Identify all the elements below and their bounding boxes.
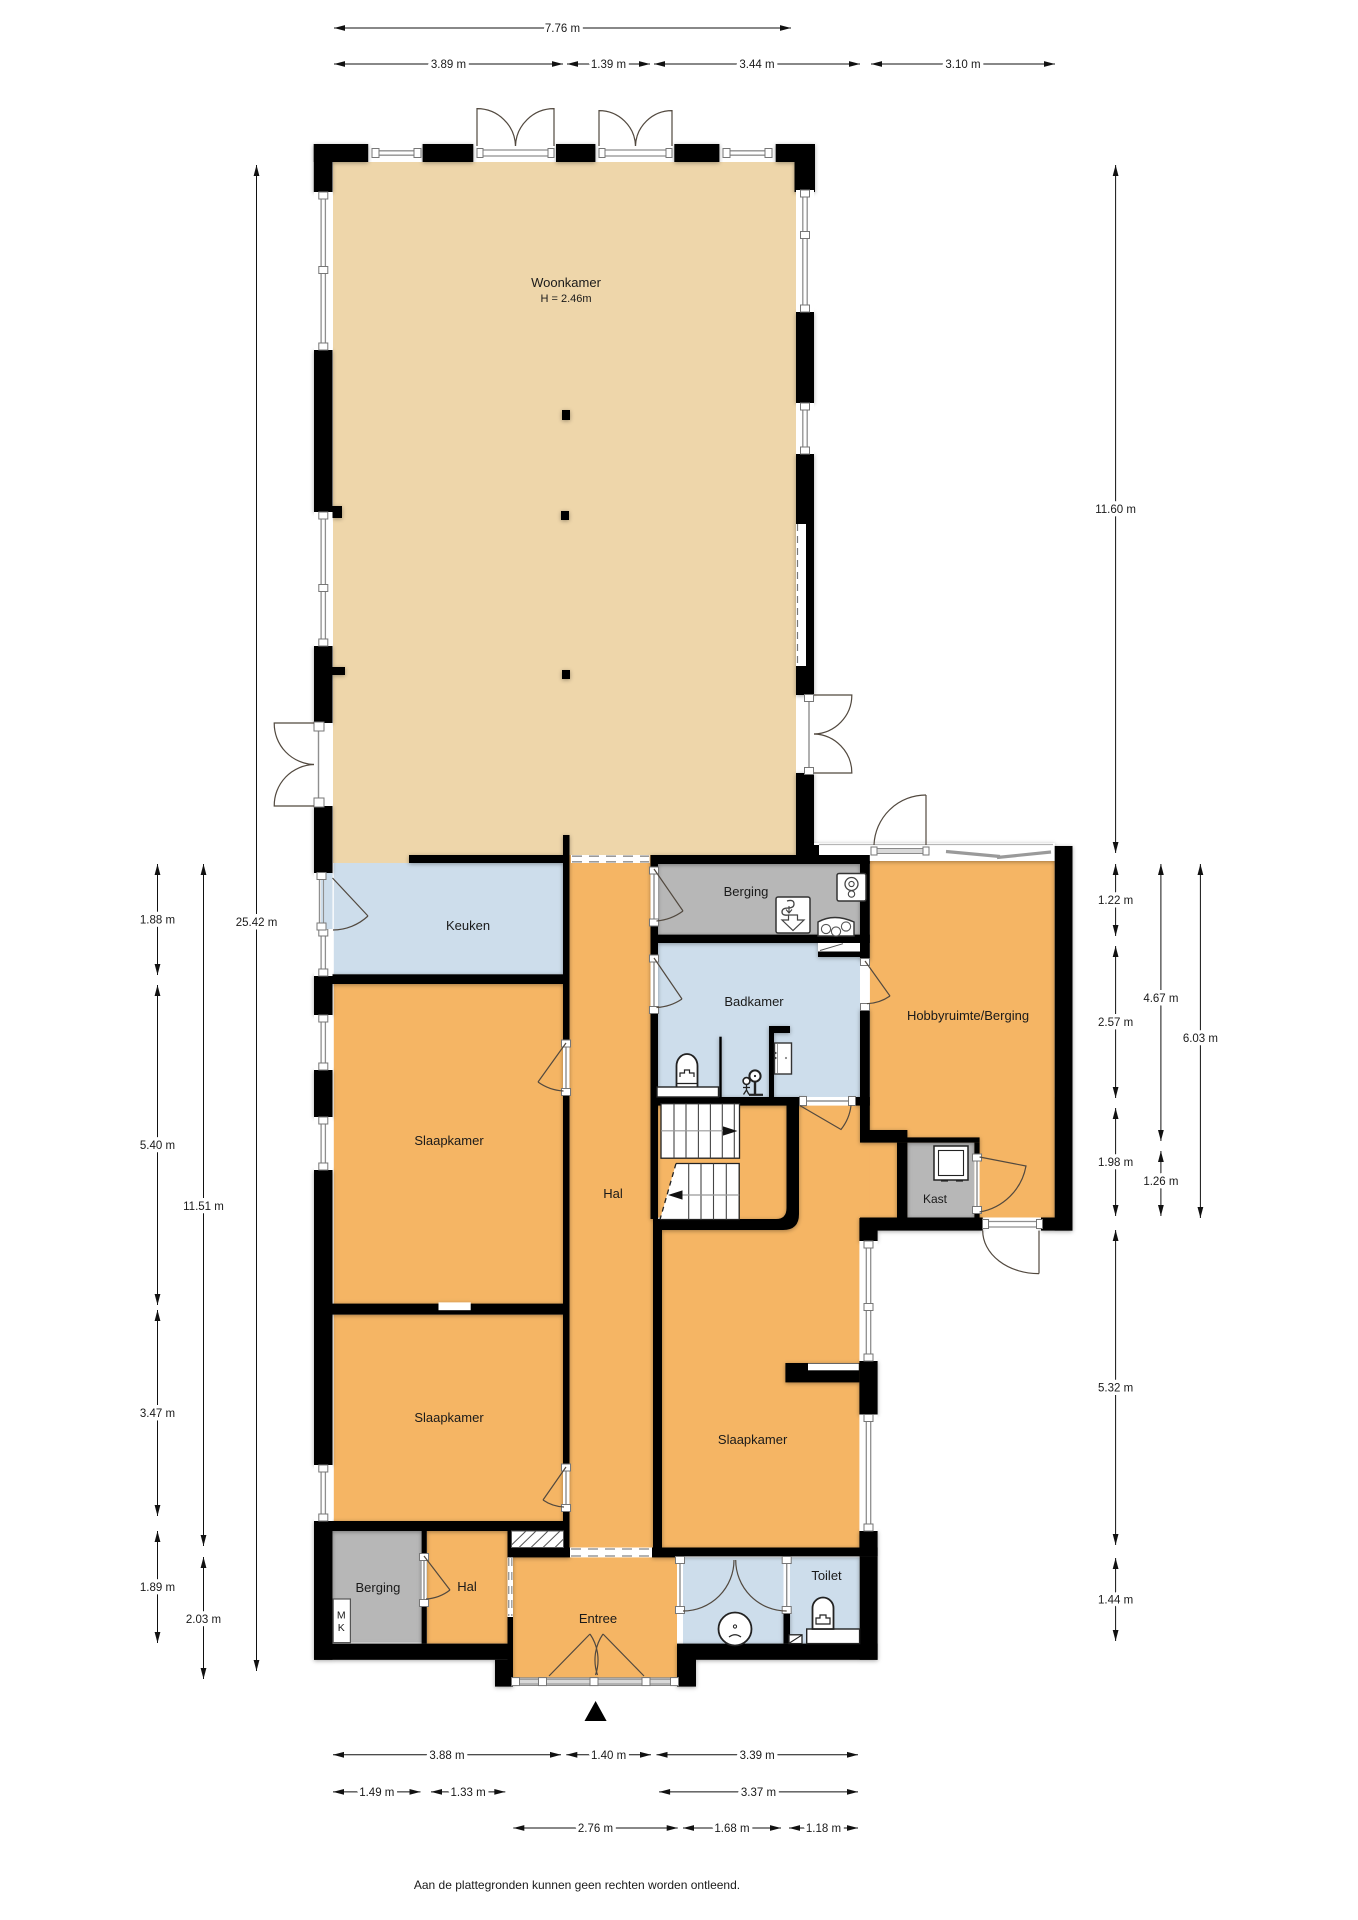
- svg-text:2.03 m: 2.03 m: [186, 1614, 221, 1626]
- svg-text:Keuken: Keuken: [446, 918, 490, 933]
- svg-text:1.26 m: 1.26 m: [1143, 1176, 1178, 1188]
- svg-text:1.49 m: 1.49 m: [359, 1787, 394, 1799]
- svg-text:Aan de plattegronden kunnen ge: Aan de plattegronden kunnen geen rechten…: [414, 1878, 740, 1892]
- svg-text:5.32 m: 5.32 m: [1098, 1383, 1133, 1395]
- svg-text:3.39 m: 3.39 m: [740, 1750, 775, 1762]
- svg-text:3.47 m: 3.47 m: [140, 1408, 175, 1420]
- svg-text:3.37 m: 3.37 m: [741, 1787, 776, 1799]
- svg-text:K: K: [338, 1622, 345, 1634]
- svg-text:Slaapkamer: Slaapkamer: [414, 1133, 484, 1148]
- svg-text:M: M: [337, 1610, 346, 1622]
- svg-text:Entree: Entree: [579, 1611, 617, 1626]
- svg-text:4.67 m: 4.67 m: [1143, 993, 1178, 1005]
- svg-text:7.76 m: 7.76 m: [545, 23, 580, 35]
- svg-text:Badkamer: Badkamer: [724, 994, 784, 1009]
- svg-text:5.40 m: 5.40 m: [140, 1140, 175, 1152]
- svg-text:11.51 m: 11.51 m: [183, 1201, 224, 1213]
- svg-text:6.03 m: 6.03 m: [1183, 1033, 1218, 1045]
- svg-text:Slaapkamer: Slaapkamer: [718, 1432, 788, 1447]
- svg-text:Kast: Kast: [923, 1192, 948, 1206]
- svg-text:Hal: Hal: [603, 1186, 623, 1201]
- svg-text:25.42 m: 25.42 m: [236, 917, 278, 929]
- svg-text:Woonkamer: Woonkamer: [531, 275, 602, 290]
- svg-text:1.98 m: 1.98 m: [1098, 1157, 1133, 1169]
- svg-text:Berging: Berging: [355, 1580, 400, 1595]
- svg-text:1.22 m: 1.22 m: [1098, 895, 1133, 907]
- svg-text:1.88 m: 1.88 m: [140, 915, 175, 927]
- svg-text:1.40 m: 1.40 m: [591, 1750, 626, 1762]
- svg-text:11.60 m: 11.60 m: [1095, 504, 1136, 516]
- svg-text:1.44 m: 1.44 m: [1098, 1595, 1133, 1607]
- svg-text:1.89 m: 1.89 m: [140, 1582, 175, 1594]
- svg-text:Hobbyruimte/Berging: Hobbyruimte/Berging: [907, 1008, 1029, 1023]
- svg-text:3.89 m: 3.89 m: [431, 59, 466, 71]
- svg-text:1.33 m: 1.33 m: [451, 1787, 486, 1799]
- svg-text:1.39 m: 1.39 m: [591, 59, 626, 71]
- svg-text:Slaapkamer: Slaapkamer: [414, 1410, 484, 1425]
- svg-text:Hal: Hal: [457, 1579, 477, 1594]
- svg-text:Toilet: Toilet: [811, 1568, 842, 1583]
- svg-text:1.18 m: 1.18 m: [806, 1823, 841, 1835]
- svg-text:3.44 m: 3.44 m: [739, 59, 774, 71]
- svg-text:1.68 m: 1.68 m: [714, 1823, 749, 1835]
- svg-text:H = 2.46m: H = 2.46m: [540, 293, 591, 305]
- svg-text:3.10 m: 3.10 m: [945, 59, 980, 71]
- svg-text:3.88 m: 3.88 m: [429, 1750, 464, 1762]
- svg-text:2.57 m: 2.57 m: [1098, 1017, 1133, 1029]
- svg-text:2.76 m: 2.76 m: [578, 1823, 613, 1835]
- svg-text:Berging: Berging: [724, 884, 769, 899]
